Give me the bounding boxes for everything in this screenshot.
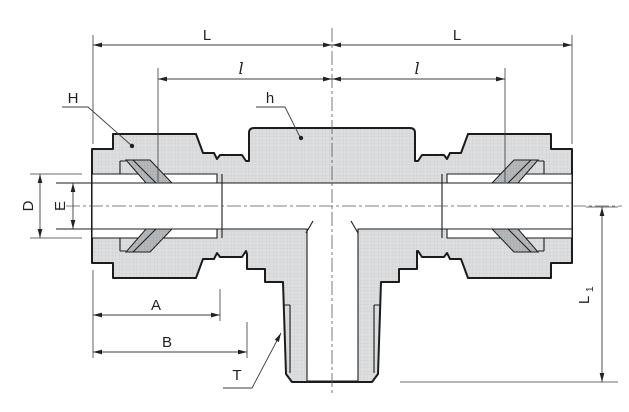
fitting-silhouette	[56, 28, 622, 396]
label-L1-subscript: 1	[585, 286, 596, 292]
label-E: E	[52, 201, 69, 211]
drawing-page: L L l l H h D E A B T L 1	[0, 0, 629, 412]
label-l-right: l	[414, 59, 419, 78]
label-l-left: l	[238, 59, 243, 78]
label-L-left: L	[203, 27, 211, 44]
label-h: h	[266, 90, 274, 107]
label-A: A	[151, 297, 161, 314]
leader-H-dot	[130, 144, 134, 148]
label-B: B	[162, 334, 172, 351]
technical-drawing: L L l l H h D E A B T L 1	[0, 0, 629, 412]
leader-h-dot	[299, 136, 303, 140]
label-L1: L 1	[576, 286, 596, 304]
label-L1-main: L	[576, 296, 593, 304]
label-D: D	[20, 200, 37, 211]
label-H: H	[68, 90, 79, 107]
label-L-right: L	[453, 27, 461, 44]
label-T: T	[232, 367, 241, 384]
